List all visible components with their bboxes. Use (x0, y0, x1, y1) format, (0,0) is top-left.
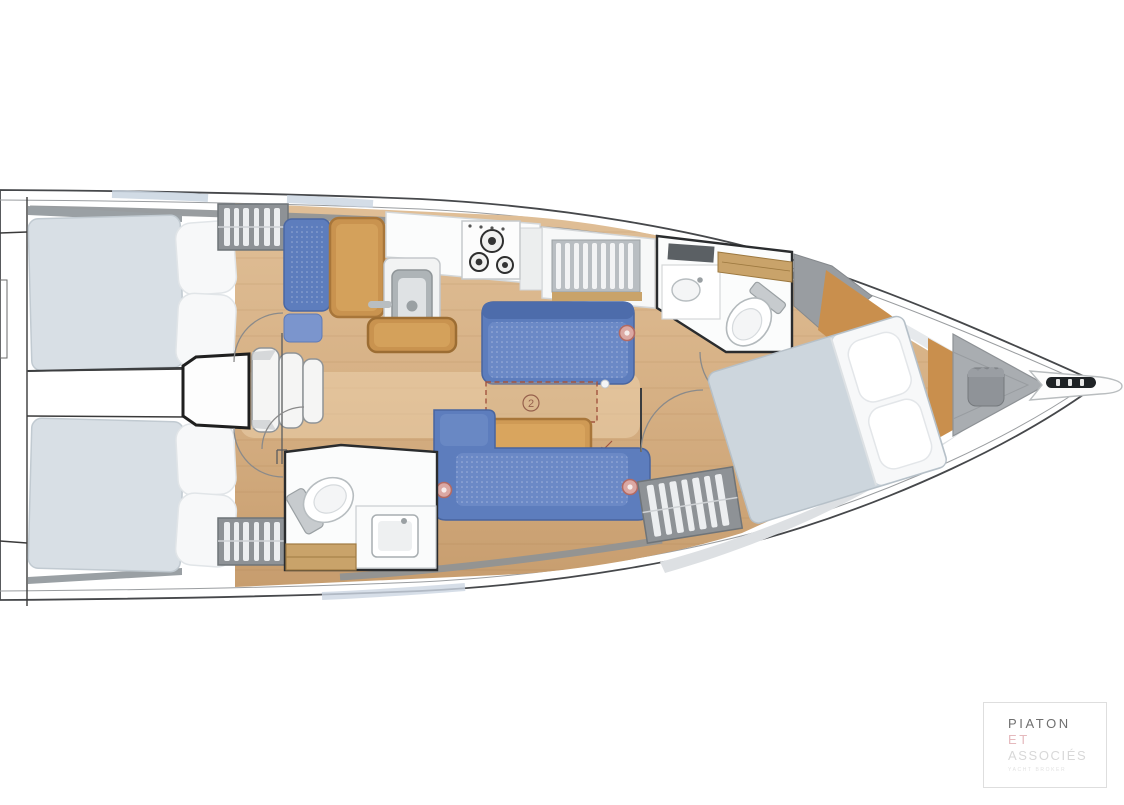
hanging-locker (218, 204, 288, 250)
head-sink (356, 506, 436, 568)
table-extension: 2 (486, 382, 597, 422)
engine-box (183, 354, 249, 428)
fridge-lid (520, 228, 542, 290)
stove (462, 221, 520, 279)
hanging-locker (218, 518, 288, 565)
head-drawers (286, 544, 356, 570)
faucet (697, 277, 703, 283)
bowsprit (1030, 371, 1122, 400)
marker-dot (437, 483, 452, 498)
brand-name-line2: ET (1008, 732, 1106, 748)
table-extension-marker: 2 (528, 398, 534, 410)
deck-window-top-2 (287, 199, 373, 204)
settee-starboard (482, 302, 634, 388)
anchor-bag (968, 367, 1004, 406)
yacht-floorplan-page: 2 (0, 0, 1124, 805)
faucet-handle (368, 301, 392, 308)
nav-seat-extension (284, 314, 322, 342)
deck-window-top-1 (112, 194, 208, 198)
brand-logo-card: PIATON ET ASSOCIÉS YACHT BROKER (983, 702, 1107, 788)
faucet (407, 301, 418, 312)
brand-subtitle: YACHT BROKER (1008, 767, 1106, 773)
aft-head (285, 445, 437, 570)
faucet (401, 518, 407, 524)
brand-name-line1: PIATON (1008, 716, 1106, 732)
hinge-dot (601, 380, 609, 388)
dish-rack (552, 240, 642, 301)
marker-dot (620, 326, 635, 341)
boat-floor-plan: 2 (0, 0, 1124, 805)
aft-bed-mattress (28, 418, 184, 572)
companionway-steps (252, 348, 323, 432)
head-sink (662, 265, 720, 319)
nav-seat-texture (288, 224, 326, 306)
brand-name-line3: ASSOCIÉS (1008, 748, 1106, 764)
cabinet-slot (667, 243, 714, 262)
aft-bed-mattress (28, 215, 184, 371)
galley-cabinet-top (374, 323, 450, 347)
dish-rack-wood-trim (552, 292, 642, 301)
chart-table-top (336, 224, 378, 311)
marker-dot (623, 480, 638, 495)
